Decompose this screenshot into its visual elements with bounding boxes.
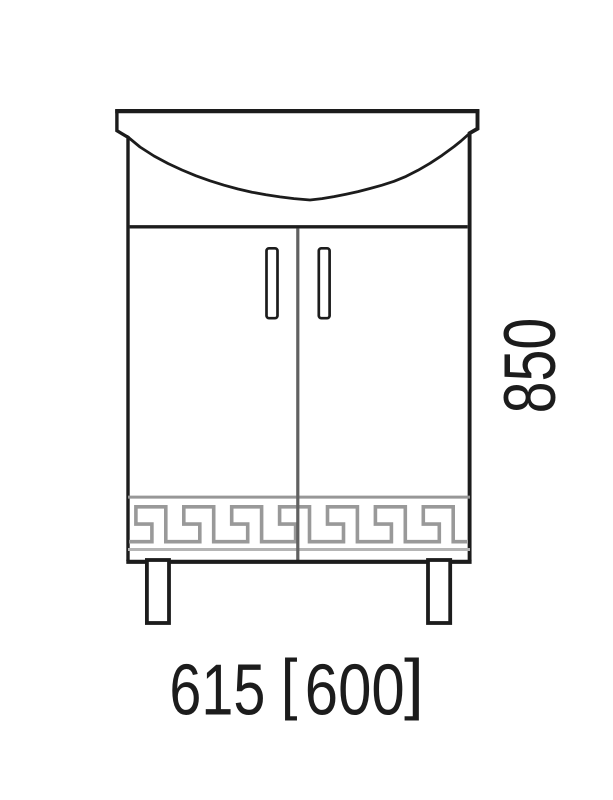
svg-text:615: 615: [169, 649, 265, 730]
svg-text:[: [: [281, 647, 298, 722]
svg-text:600: 600: [305, 649, 405, 730]
svg-text:]: ]: [404, 647, 424, 722]
svg-text:850: 850: [488, 318, 571, 414]
